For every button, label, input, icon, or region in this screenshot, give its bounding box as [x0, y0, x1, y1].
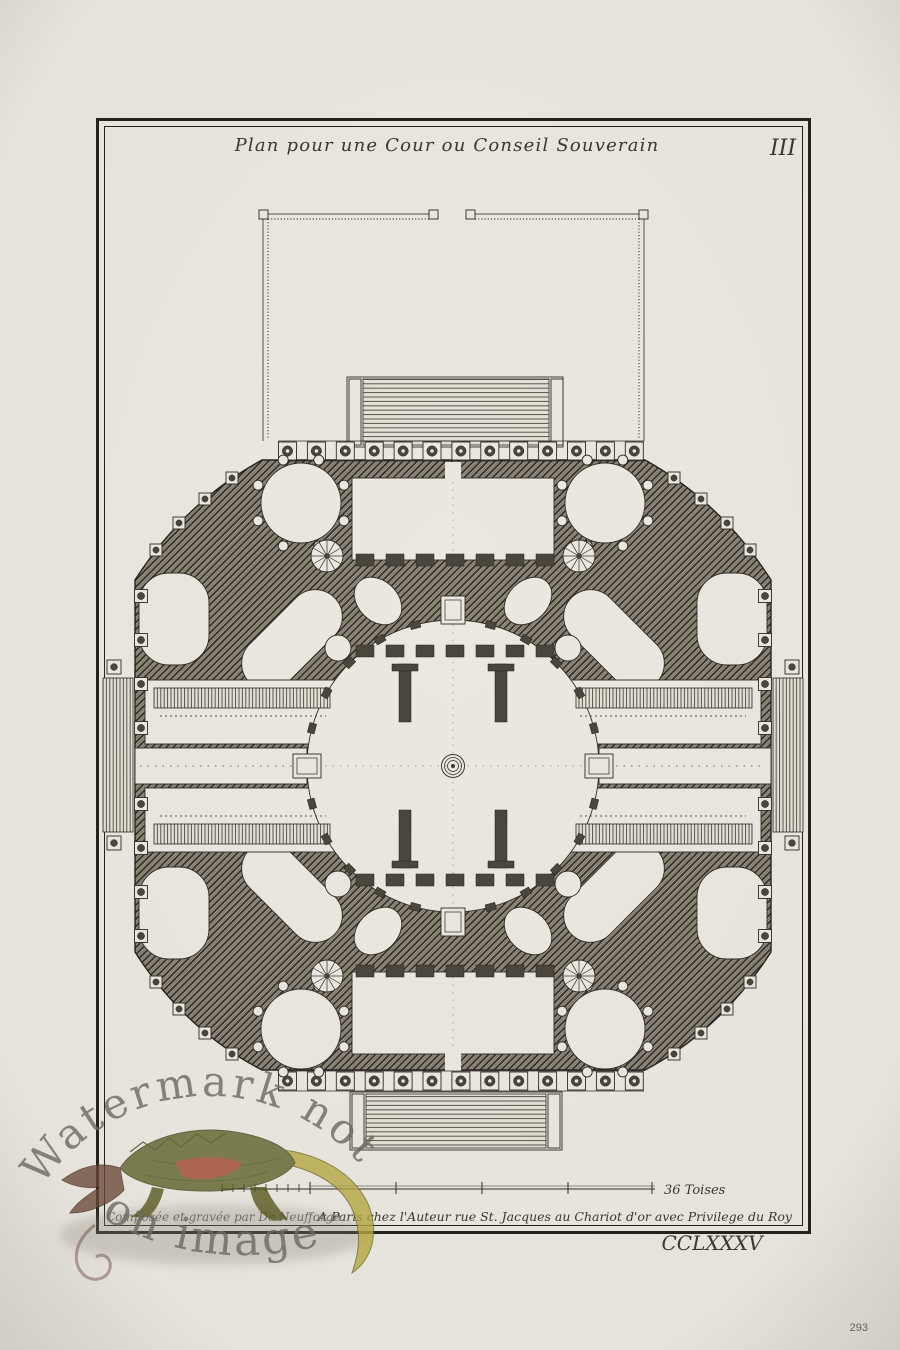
engraving-page: Plan pour une Cour ou Conseil Souverain …	[0, 0, 900, 1350]
architectural-plan-engraving: Plan pour une Cour ou Conseil Souverain …	[0, 0, 900, 1350]
